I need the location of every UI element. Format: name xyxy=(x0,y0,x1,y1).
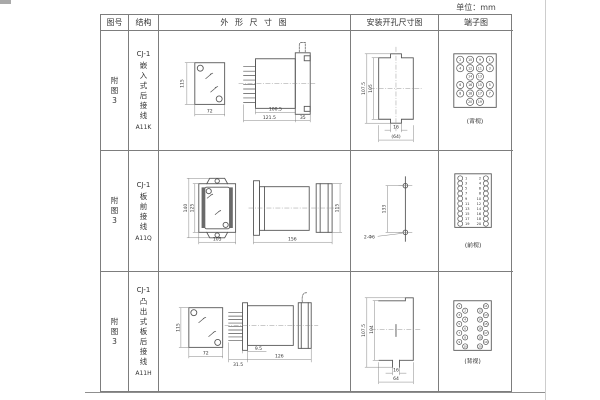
dim-cutout-inner: 105 xyxy=(368,84,374,93)
fig-no-row3: 附 图 3 xyxy=(111,317,119,347)
svg-text:7: 7 xyxy=(458,330,460,334)
svg-text:13: 13 xyxy=(484,313,488,317)
svg-text:11: 11 xyxy=(477,66,481,70)
svg-text:4: 4 xyxy=(459,66,461,70)
side-dim-lines xyxy=(254,184,343,244)
mounting-hole-drawing-a11k: 107.5 105 16 (64) xyxy=(351,31,438,150)
dim-depth: 126 xyxy=(275,353,284,359)
outline-cell-row3: 115 72 9.5 31.5 126 xyxy=(159,272,351,391)
mounting-cell-row3: 107.5 104 16 64 xyxy=(351,272,439,391)
structure-code: A11Q xyxy=(135,235,151,242)
terminal-grid: 1234567891011121314151617181920 xyxy=(456,303,488,348)
front-dim-lines xyxy=(179,307,223,358)
svg-text:9: 9 xyxy=(478,58,480,62)
mount-dim-lines xyxy=(365,297,413,383)
svg-text:20: 20 xyxy=(468,100,472,104)
svg-text:7: 7 xyxy=(464,192,466,196)
cutout-shape xyxy=(379,297,414,366)
front-view xyxy=(189,307,223,347)
svg-text:17: 17 xyxy=(477,92,481,96)
terminal-grid: 1234567891011121314151617181920 xyxy=(457,176,488,226)
scanned-drawing-page: 单位：mm 图号 结构 外 形 尺 寸 图 安装开孔尺寸图 端子图 附 图 3 … xyxy=(0,0,600,400)
header-fig-no: 图号 xyxy=(107,17,123,28)
svg-text:18: 18 xyxy=(468,92,472,96)
svg-text:16: 16 xyxy=(468,83,472,87)
page-bottom-line xyxy=(85,392,545,393)
hole-axis xyxy=(403,177,408,241)
svg-text:15: 15 xyxy=(484,322,488,326)
structure-desc: 嵌 入 式 后 接 线 xyxy=(140,61,148,121)
svg-text:11: 11 xyxy=(484,304,488,308)
svg-text:8: 8 xyxy=(478,192,481,196)
dim-front-width: 105 xyxy=(213,237,222,243)
structure-cell-row3: CJ-1 凸 出 式 板 后 接 线 A11H xyxy=(129,272,159,391)
svg-text:1: 1 xyxy=(464,177,466,181)
dim-cutout-outer: 107.5 xyxy=(361,323,367,336)
svg-text:12: 12 xyxy=(476,202,481,206)
dim-total-depth: 121.5 xyxy=(263,115,276,121)
svg-text:11: 11 xyxy=(464,202,469,206)
fig-no-row2: 附 图 3 xyxy=(111,196,119,226)
structure-cell-row2: CJ-1 板 前 接 线 A11Q xyxy=(129,151,159,272)
model-label: CJ-1 xyxy=(137,181,151,189)
mounting-cell-row1: 107.5 105 16 (64) xyxy=(351,31,439,151)
hole-callout: 2-Φ6 xyxy=(364,234,375,240)
svg-text:14: 14 xyxy=(476,207,481,211)
structure-cell-row1: CJ-1 嵌 入 式 后 接 线 A11K xyxy=(129,31,159,151)
dim-pin: 9.5 xyxy=(255,345,262,351)
model-label: CJ-1 xyxy=(137,50,151,58)
svg-text:5: 5 xyxy=(464,187,466,191)
terminal-diagram-rear: 1234567891011121314151617181920 (背视) xyxy=(440,273,513,391)
svg-text:14: 14 xyxy=(468,75,472,79)
front-view xyxy=(195,63,225,105)
svg-text:4: 4 xyxy=(464,317,466,321)
dim-width: 64 xyxy=(393,376,399,382)
dim-cutout-outer: 107.5 xyxy=(361,82,367,95)
svg-text:5: 5 xyxy=(488,83,490,87)
structure-code: A11H xyxy=(135,370,151,377)
terminal-cell-row3: 1234567891011121314151617181920 (背视) xyxy=(439,272,513,391)
svg-text:5: 5 xyxy=(458,322,460,326)
svg-text:18: 18 xyxy=(476,217,481,221)
model-label: CJ-1 xyxy=(137,286,151,294)
header-terminal-diagram: 端子图 xyxy=(464,17,488,28)
dim-cutout-inner: 104 xyxy=(369,325,375,334)
header-outline-dims: 外 形 尺 寸 图 xyxy=(220,17,288,28)
outline-drawing-a11k: 115 72 100.5 121.5 35 xyxy=(159,31,350,150)
outline-cell-row2: 140 125 105 156 115 xyxy=(159,151,351,272)
svg-text:16: 16 xyxy=(478,326,482,330)
terminal-diagram-rear: 2109141211314136161558181772019 (背视) xyxy=(440,31,513,150)
svg-text:17: 17 xyxy=(484,330,488,334)
dim-depth: 156 xyxy=(288,237,297,243)
svg-text:1: 1 xyxy=(488,58,490,62)
svg-text:14: 14 xyxy=(478,317,482,321)
svg-text:1: 1 xyxy=(458,304,460,308)
mount-dim-lines xyxy=(365,54,413,142)
svg-text:2: 2 xyxy=(478,177,480,181)
dim-width: (64) xyxy=(391,134,401,140)
svg-text:7: 7 xyxy=(488,92,490,96)
outline-drawing-a11h: 115 72 9.5 31.5 126 xyxy=(159,273,350,391)
svg-text:6: 6 xyxy=(459,83,461,87)
structure-code: A11K xyxy=(136,124,152,131)
center-lines xyxy=(370,47,422,131)
svg-text:17: 17 xyxy=(464,217,469,221)
svg-text:2: 2 xyxy=(464,308,466,312)
svg-text:6: 6 xyxy=(478,187,481,191)
svg-text:10: 10 xyxy=(476,197,481,201)
dim-slot: 16 xyxy=(393,125,399,131)
svg-text:20: 20 xyxy=(476,222,481,226)
svg-text:19: 19 xyxy=(477,100,481,104)
svg-text:3: 3 xyxy=(488,66,490,70)
svg-text:2: 2 xyxy=(459,58,461,62)
front-view xyxy=(199,178,236,238)
svg-text:10: 10 xyxy=(468,58,472,62)
dim-front-height: 115 xyxy=(179,79,185,88)
dim-slot: 16 xyxy=(393,367,399,373)
svg-text:3: 3 xyxy=(464,182,466,186)
dim-plate: 31.5 xyxy=(233,362,243,368)
mounting-hole-drawing-a11q: 133 2-Φ6 xyxy=(351,151,438,271)
page-edge-line xyxy=(545,0,546,400)
dim-outer-height: 140 xyxy=(183,204,189,213)
terminal-diagram-front: 1234567891011121314151617181920 (前视) xyxy=(440,151,513,271)
scan-corner-artifact xyxy=(0,0,11,4)
side-view xyxy=(244,42,311,114)
structure-desc: 凸 出 式 板 后 接 线 xyxy=(140,297,148,367)
terminal-grid: 2109141211314136161558181772019 xyxy=(456,56,493,105)
dim-front-height: 115 xyxy=(175,323,181,332)
dim-body-depth: 100.5 xyxy=(269,106,282,112)
dim-flange: 35 xyxy=(300,115,306,121)
svg-text:15: 15 xyxy=(464,212,469,216)
dim-hole-pitch: 133 xyxy=(382,205,388,214)
front-dim-lines xyxy=(185,63,225,117)
view-label: (前视) xyxy=(464,241,480,249)
outline-cell-row1: 115 72 100.5 121.5 35 xyxy=(159,31,351,151)
svg-text:4: 4 xyxy=(478,182,481,186)
mounting-hole-drawing-a11h: 107.5 104 16 64 xyxy=(351,273,438,391)
svg-text:8: 8 xyxy=(459,92,461,96)
svg-text:13: 13 xyxy=(464,207,469,211)
mounting-cell-row2: 133 2-Φ6 xyxy=(351,151,439,272)
svg-text:6: 6 xyxy=(464,326,466,330)
side-view xyxy=(229,292,312,350)
header-mounting-dims: 安装开孔尺寸图 xyxy=(367,17,423,28)
view-label: (背视) xyxy=(464,357,480,365)
svg-text:12: 12 xyxy=(478,308,482,312)
view-label: (背视) xyxy=(466,117,482,125)
svg-text:9: 9 xyxy=(464,197,466,201)
unit-label: 单位：mm xyxy=(438,2,514,13)
fig-no-row1: 附 图 3 xyxy=(111,76,119,106)
structure-desc: 板 前 接 线 xyxy=(140,192,148,232)
dim-side-height: 115 xyxy=(335,204,341,213)
drawing-table: 图号 结构 外 形 尺 寸 图 安装开孔尺寸图 端子图 附 图 3 CJ-1 嵌… xyxy=(100,14,512,392)
svg-text:8: 8 xyxy=(464,335,466,339)
dim-inner-height: 125 xyxy=(189,204,195,213)
svg-text:19: 19 xyxy=(484,339,488,343)
dim-front-width: 72 xyxy=(203,350,209,356)
svg-text:16: 16 xyxy=(476,212,481,216)
terminal-cell-row1: 2109141211314136161558181772019 (背视) xyxy=(439,31,513,151)
outline-drawing-a11q: 140 125 105 156 115 xyxy=(159,151,350,271)
svg-text:12: 12 xyxy=(468,66,472,70)
svg-text:20: 20 xyxy=(478,344,482,348)
svg-text:18: 18 xyxy=(478,335,482,339)
dim-front-width: 72 xyxy=(207,108,213,114)
svg-text:10: 10 xyxy=(463,344,467,348)
header-structure: 结构 xyxy=(136,17,152,28)
svg-text:3: 3 xyxy=(458,313,460,317)
svg-text:9: 9 xyxy=(458,339,460,343)
svg-text:13: 13 xyxy=(477,75,481,79)
svg-text:15: 15 xyxy=(477,83,481,87)
svg-text:19: 19 xyxy=(464,222,469,226)
terminal-cell-row2: 1234567891011121314151617181920 (前视) xyxy=(439,151,513,272)
